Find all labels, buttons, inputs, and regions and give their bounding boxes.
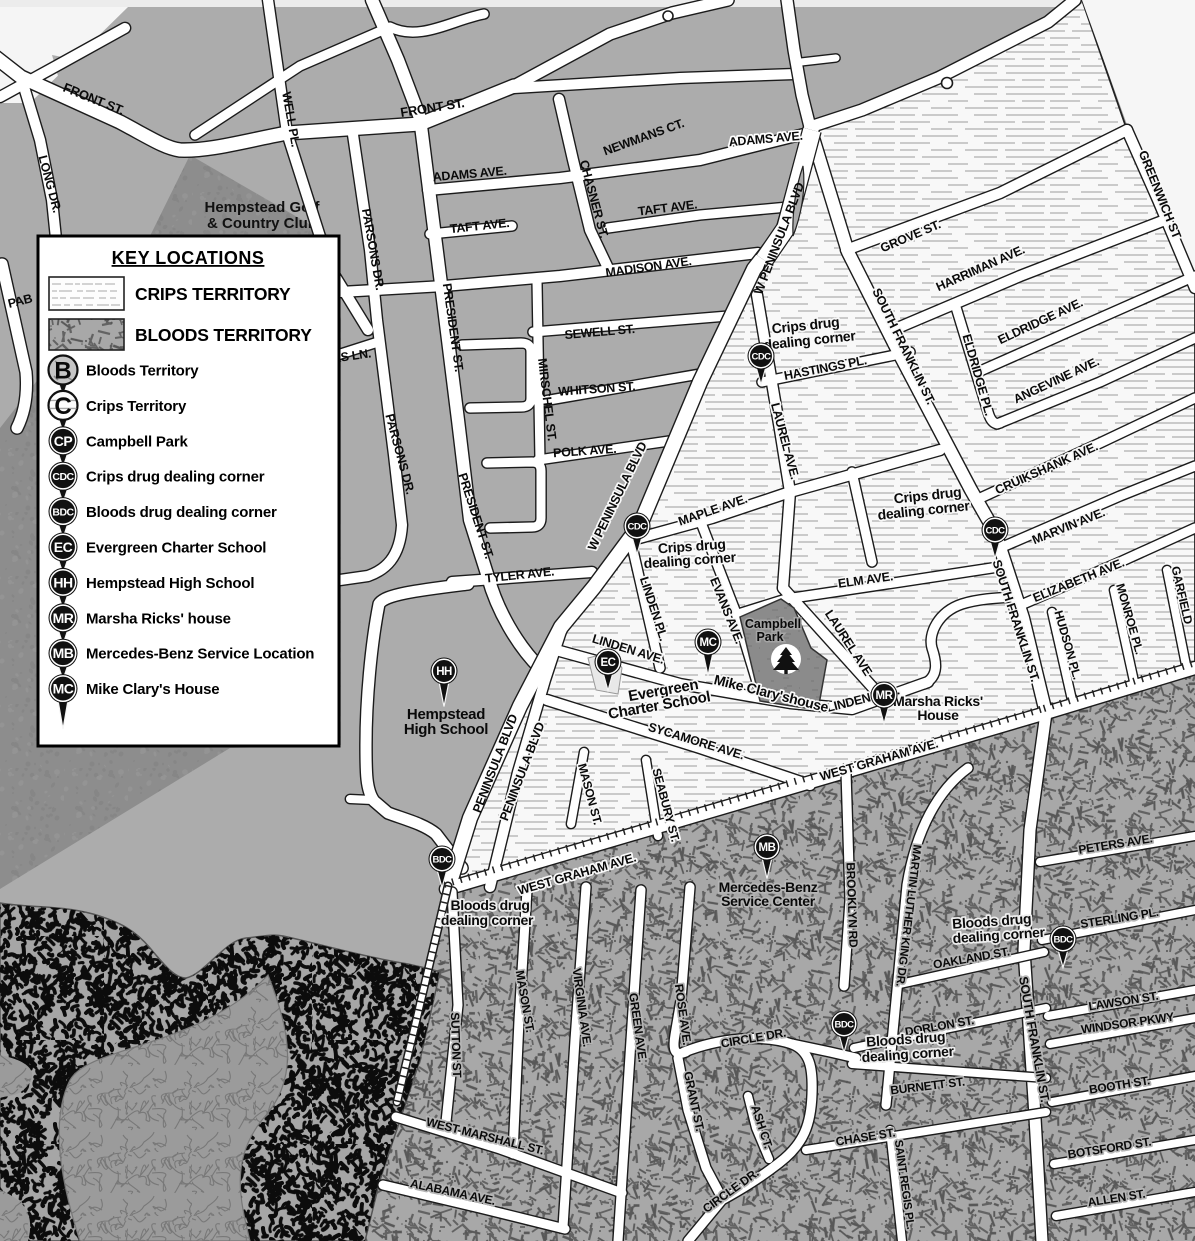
svg-text:dealing corner: dealing corner — [441, 912, 534, 928]
svg-text:MR: MR — [53, 610, 74, 626]
svg-text:Hempstead High School: Hempstead High School — [86, 575, 254, 592]
svg-text:Mike Clary's House: Mike Clary's House — [86, 681, 219, 698]
svg-text:Mercedes-Benz Service Location: Mercedes-Benz Service Location — [86, 646, 314, 663]
svg-text:C: C — [54, 393, 71, 420]
svg-text:HH: HH — [436, 666, 452, 678]
svg-text:BLOODS TERRITORY: BLOODS TERRITORY — [135, 325, 312, 345]
svg-text:Campbell: Campbell — [745, 617, 801, 631]
svg-text:EC: EC — [601, 657, 616, 669]
svg-text:Marsha Ricks' house: Marsha Ricks' house — [86, 610, 231, 627]
svg-text:MB: MB — [759, 842, 776, 854]
svg-text:BDC: BDC — [834, 1019, 854, 1030]
svg-text:CDC: CDC — [985, 525, 1005, 536]
svg-text:Crips drug dealing corner: Crips drug dealing corner — [86, 469, 265, 486]
svg-text:CDC: CDC — [751, 351, 771, 362]
svg-text:SUTTON ST: SUTTON ST — [448, 1012, 464, 1078]
svg-text:BDC: BDC — [1053, 934, 1073, 945]
svg-text:Evergreen Charter School: Evergreen Charter School — [86, 540, 266, 557]
svg-text:Campbell Park: Campbell Park — [86, 433, 188, 450]
svg-text:BDC: BDC — [432, 854, 452, 865]
svg-text:CRIPS TERRITORY: CRIPS TERRITORY — [135, 284, 291, 304]
svg-text:High School: High School — [404, 721, 488, 738]
svg-text:CDC: CDC — [52, 471, 74, 483]
svg-text:Bloods Territory: Bloods Territory — [86, 363, 199, 380]
svg-text:KEY LOCATIONS: KEY LOCATIONS — [112, 248, 265, 268]
svg-text:House: House — [917, 707, 959, 723]
svg-text:Service Center: Service Center — [721, 893, 816, 909]
svg-text:HH: HH — [53, 574, 73, 590]
svg-text:BROOKLYN RD: BROOKLYN RD — [844, 862, 861, 948]
svg-text:MC: MC — [53, 681, 74, 697]
svg-text:Crips Territory: Crips Territory — [86, 398, 187, 415]
svg-text:MC: MC — [700, 637, 717, 649]
svg-text:CDC: CDC — [627, 521, 647, 532]
svg-text:BDC: BDC — [52, 506, 74, 518]
svg-text:MB: MB — [53, 645, 74, 661]
svg-text:Bloods drug dealing corner: Bloods drug dealing corner — [86, 504, 277, 521]
svg-text:MR: MR — [876, 690, 894, 702]
svg-text:EC: EC — [54, 539, 73, 555]
svg-text:& Country Club: & Country Club — [207, 215, 317, 232]
svg-text:Bloods drug: Bloods drug — [450, 897, 529, 913]
svg-text:CP: CP — [54, 433, 73, 449]
svg-text:Park: Park — [756, 630, 783, 644]
svg-text:B: B — [54, 358, 71, 385]
